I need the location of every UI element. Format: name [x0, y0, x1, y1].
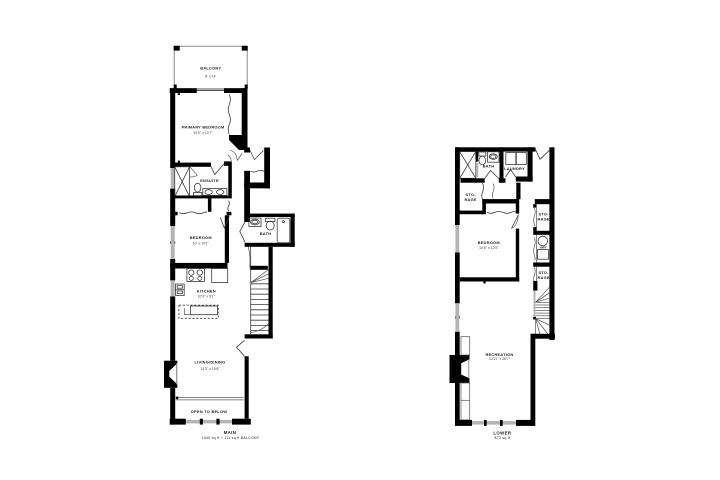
- svg-text:BATH: BATH: [260, 231, 272, 236]
- svg-text:RAGE: RAGE: [464, 197, 476, 202]
- svg-text:RAGE: RAGE: [537, 216, 549, 221]
- svg-text:BALCONY: BALCONY: [200, 66, 221, 71]
- svg-text:LAUNDRY: LAUNDRY: [504, 166, 525, 171]
- svg-text:10'5" x 13'7": 10'5" x 13'7": [193, 131, 213, 135]
- svg-text:873 sq ft: 873 sq ft: [495, 436, 511, 440]
- svg-text:RAGE: RAGE: [537, 275, 549, 280]
- svg-text:ENSUITE: ENSUITE: [200, 178, 219, 183]
- svg-text:MAIN: MAIN: [224, 430, 237, 435]
- svg-text:10'6" x 12'5": 10'6" x 12'5": [479, 246, 499, 250]
- svg-text:LOWER: LOWER: [493, 431, 511, 436]
- svg-text:BEDROOM: BEDROOM: [190, 235, 212, 240]
- svg-text:10' x 10'1": 10' x 10'1": [193, 241, 210, 245]
- svg-text:BEDROOM: BEDROOM: [478, 240, 500, 245]
- svg-text:HWT: HWT: [540, 246, 547, 250]
- svg-text:8' x 14': 8' x 14': [205, 75, 216, 79]
- svg-text:1040 sq ft + 111 sq ft BALCONY: 1040 sq ft + 111 sq ft BALCONY: [202, 436, 260, 440]
- svg-text:PRIMARY BEDROOM: PRIMARY BEDROOM: [182, 125, 225, 130]
- svg-text:OPEN TO BELOW: OPEN TO BELOW: [191, 409, 227, 414]
- svg-text:10'3" x 9'1": 10'3" x 9'1": [198, 295, 216, 299]
- svg-text:13'11" x 26'7": 13'11" x 26'7": [489, 357, 511, 361]
- svg-text:13'3" x 15'6": 13'3" x 15'6": [200, 367, 220, 371]
- svg-text:LIVING/DINING: LIVING/DINING: [195, 360, 226, 365]
- svg-text:KITCHEN: KITCHEN: [197, 288, 216, 293]
- svg-text:RECREATION: RECREATION: [486, 352, 514, 357]
- svg-text:BATH: BATH: [483, 164, 495, 169]
